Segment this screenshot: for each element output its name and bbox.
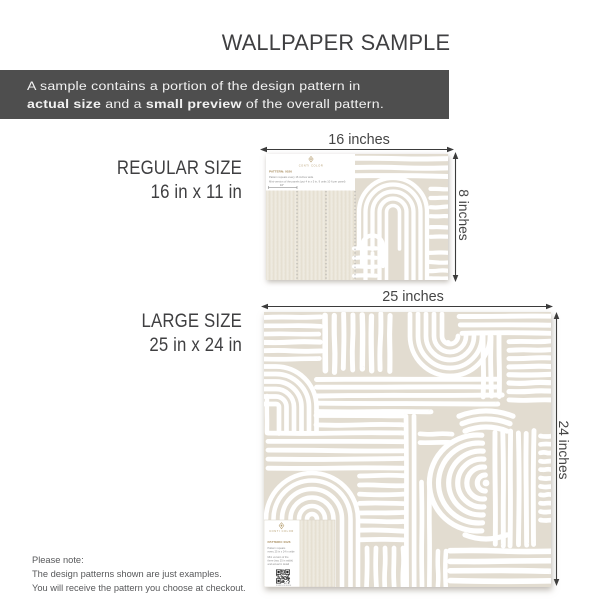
- svg-text:CONTI COLOR: CONTI COLOR: [269, 529, 294, 533]
- svg-text:CONTI COLOR: CONTI COLOR: [299, 164, 324, 168]
- svg-text:Pattern repeats every 16 inche: Pattern repeats every 16 inches wide: [269, 175, 314, 179]
- svg-text:PATTERN: 0026: PATTERN: 0026: [269, 170, 292, 174]
- svg-text:Mini version of the: Mini version of the: [268, 555, 290, 559]
- svg-text:Pattern repeats: Pattern repeats: [268, 546, 286, 550]
- svg-text:PATTERN: 0026: PATTERN: 0026: [268, 540, 291, 544]
- svg-text:and actual in detail: and actual in detail: [268, 562, 290, 566]
- svg-text:16": 16": [280, 183, 284, 187]
- svg-text:every 25 in x 24 in wide: every 25 in x 24 in wide: [268, 550, 296, 554]
- svg-text:Mini version of the panels (pu: Mini version of the panels (put 4 in x 5…: [269, 180, 345, 184]
- svg-text:SCAN FOR MORE: SCAN FOR MORE: [276, 584, 292, 587]
- svg-text:three (two 25 in width): three (two 25 in width): [268, 559, 294, 563]
